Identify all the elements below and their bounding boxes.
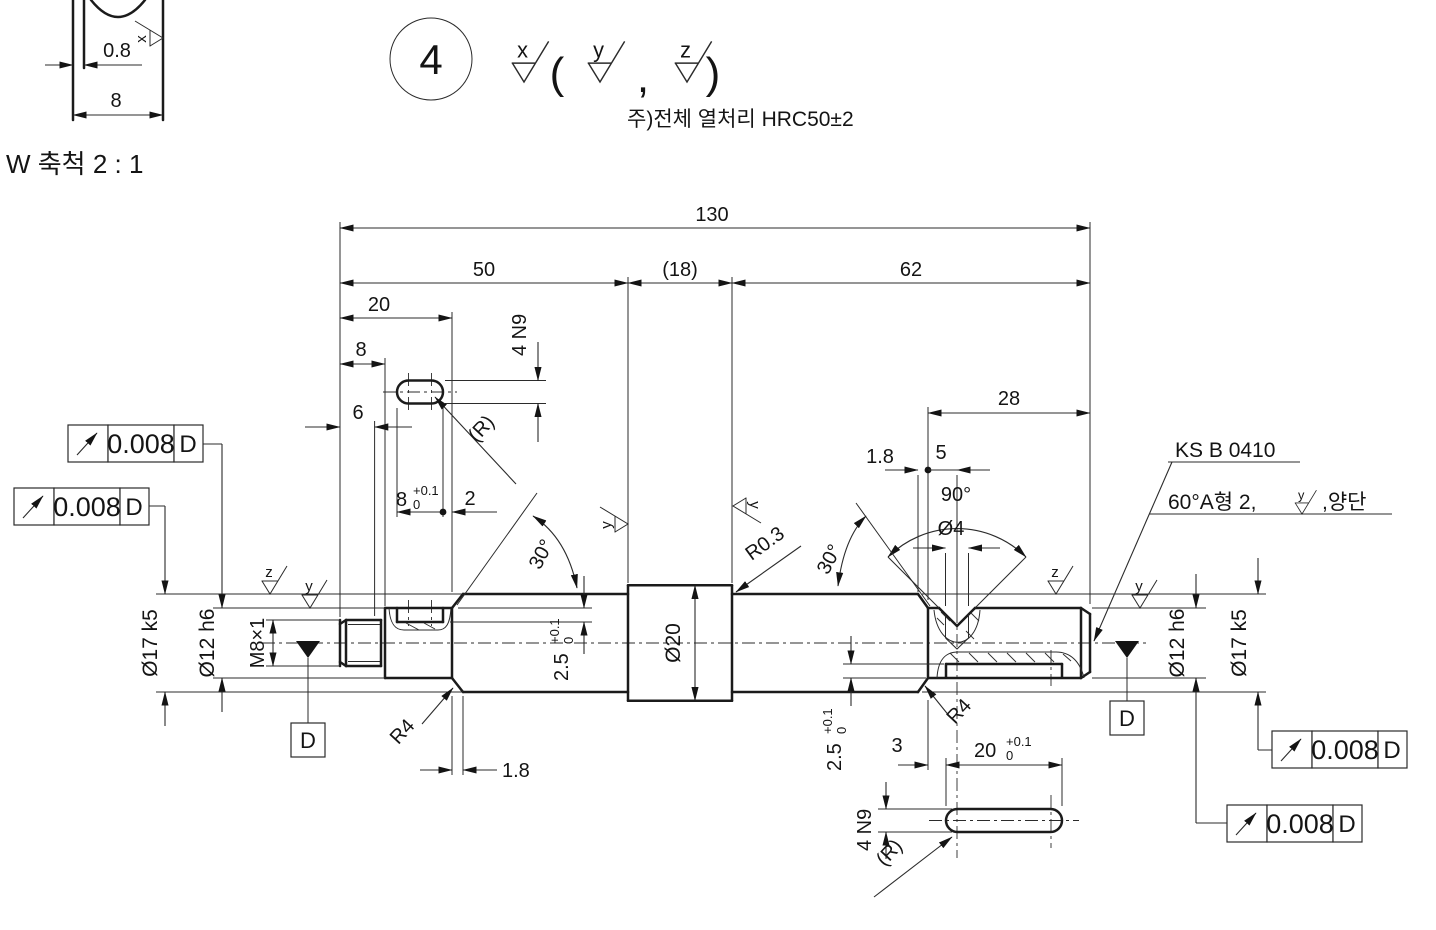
gdt-frame-right-lower: 0.008 D — [1196, 805, 1362, 842]
label-left-keyway-radius: (R) — [464, 411, 499, 446]
dim-collar-fillet: R0.3 — [742, 523, 789, 566]
detail-relief-dim: 0.8 — [103, 40, 131, 62]
detail-length-dim: 8 — [110, 90, 121, 112]
dim-right-keyway-offset: 3 — [891, 735, 902, 757]
dim-left-keyway-gap: 2 — [464, 488, 475, 510]
note-center-spec-prefix: 60°A형 2, — [1168, 491, 1256, 514]
dim-right-keyway-depth: 2.5 — [824, 743, 846, 771]
surface-mark-letter: z — [1051, 564, 1059, 581]
datum-triangle-icon — [1115, 641, 1139, 658]
gdt-frame-left-lower: 0.008 D — [14, 488, 165, 525]
gdt-frame-right-upper: 0.008 D — [1258, 731, 1407, 768]
surface-finish-icon: y — [1132, 578, 1158, 608]
finish-note: 4 x ( y , z ) 주)전체 열처리 HRC50±2 — [390, 18, 854, 131]
surface-finish-icon: x — [133, 21, 163, 47]
gdt-datum: D — [1383, 737, 1400, 764]
dim-right-journal: 28 — [998, 388, 1020, 410]
gdt-datum: D — [125, 494, 142, 521]
tol-plus: +0.1 — [413, 483, 439, 498]
surface-mark-letter: y — [1298, 488, 1305, 503]
surface-finish-icon: y — [588, 37, 625, 82]
gdt-value: 0.008 — [1266, 809, 1334, 839]
dim-left-journal: 20 — [368, 294, 390, 316]
dim-chamfer-angle-right: 30° — [813, 541, 847, 578]
surface-finish-icon: y — [1295, 488, 1317, 514]
left-keyway-breakout — [389, 608, 451, 630]
label-dia17-left: Ø17 k5 — [139, 609, 162, 677]
surface-mark-letter: z — [680, 37, 691, 62]
tol-zero: 0 — [1006, 748, 1013, 763]
surface-finish-icon: y — [302, 578, 328, 608]
surface-mark-letter: y — [1135, 578, 1143, 595]
left-keyway-plan: 4 N9 8 +0.1 0 2 (R) — [396, 314, 546, 517]
dim-right-section: 62 — [900, 259, 922, 281]
note-center-spec-suffix: ,양단 — [1322, 491, 1366, 514]
centerlines — [262, 373, 1150, 858]
surface-finish-icon: x — [512, 37, 549, 82]
tol-plus: +0.1 — [1006, 734, 1032, 749]
surface-mark-letter: y — [305, 578, 313, 595]
right-keyway-dimensions: 2.5 +0.1 0 3 20 +0.1 0 4 N9 (R) — [820, 636, 1062, 897]
datum-triangle-icon — [296, 641, 320, 658]
dim-left-keyway-depth: 2.5 — [551, 653, 573, 681]
surface-mark-letter: x — [517, 37, 528, 62]
surface-mark-letter: y — [598, 521, 615, 529]
gdt-datum: D — [1338, 811, 1355, 838]
surface-finish-icon: y — [733, 498, 763, 524]
surface-marks: z y y y z y — [262, 498, 1158, 609]
label-dia12-right: Ø12 h6 — [1166, 609, 1189, 678]
surface-mark-letter: y — [746, 501, 763, 509]
dim-right-keyway-width: 4 N9 — [854, 809, 876, 851]
paren-open: ( — [550, 49, 565, 98]
datum-label: D — [300, 728, 316, 753]
gdt-frame-left-upper: 0.008 D — [68, 425, 222, 462]
tol-zero: 0 — [834, 727, 849, 734]
dim-thread-length: 8 — [355, 339, 366, 361]
dim-center-hole-angle: 90° — [941, 484, 971, 506]
dim-center-hole-offset: 5 — [935, 442, 946, 464]
comma: , — [637, 53, 649, 102]
note-center-standard: KS B 0410 — [1175, 439, 1275, 462]
dim-left-keyway-width: 4 N9 — [509, 314, 531, 356]
tol-zero: 0 — [413, 497, 420, 512]
surface-finish-icon: z — [1048, 564, 1074, 594]
top-dimensions: 130 50 (18) 62 20 8 6 — [305, 204, 1090, 617]
dim-shoulder-fillet-left: R4 — [386, 715, 420, 749]
drawing-sheet: 0.8 8 x W 축척 2 : 1 4 x ( y , z ) 주)전체 열처… — [0, 0, 1436, 930]
dim-total-length: 130 — [695, 204, 728, 226]
shaft-drawing: 0.8 8 x W 축척 2 : 1 4 x ( y , z ) 주)전체 열처… — [0, 0, 1436, 930]
tol-plus: +0.1 — [547, 618, 562, 644]
surface-mark-letter: y — [593, 37, 604, 62]
surface-finish-icon: y — [598, 507, 628, 533]
surface-finish-icon: z — [262, 564, 288, 594]
label-right-keyway-radius: (R) — [872, 835, 907, 870]
left-dimensions: M8×1 Ø12 h6 Ø17 k5 2.5 +0.1 0 30° R4 — [139, 444, 592, 782]
paren-close: ) — [706, 49, 721, 98]
tol-plus: +0.1 — [820, 708, 835, 734]
dim-chamfer-width-left: 1.8 — [502, 760, 530, 782]
datum-right: D — [1110, 641, 1144, 735]
gdt-datum: D — [179, 431, 196, 458]
dim-left-section: 50 — [473, 259, 495, 281]
detail-boundary-arc — [91, 0, 145, 17]
label-dia17-right: Ø17 k5 — [1228, 609, 1251, 677]
dim-collar-section: (18) — [662, 259, 698, 281]
dim-relief-width-right: 1.8 — [866, 446, 894, 468]
gdt-value: 0.008 — [53, 492, 121, 522]
detail-w-view: 0.8 8 x W 축척 2 : 1 — [6, 0, 163, 179]
dim-collar-dia: Ø20 — [662, 623, 685, 663]
datum-label: D — [1119, 706, 1135, 731]
gdt-value: 0.008 — [1311, 735, 1379, 765]
label-dia12-left: Ø12 h6 — [196, 609, 219, 678]
detail-w-title: W 축척 2 : 1 — [6, 149, 143, 179]
surface-mark-letter: x — [133, 35, 150, 43]
label-thread: M8×1 — [247, 618, 269, 669]
dim-right-keyway-length: 20 — [974, 740, 996, 762]
dim-center-hole-dia: Ø4 — [938, 518, 965, 540]
balloon-number: 4 — [419, 36, 442, 83]
dim-left-keyway-length: 8 — [396, 489, 407, 511]
chain-dim-dot — [440, 509, 447, 516]
heat-treatment-note: 주)전체 열처리 HRC50±2 — [627, 108, 854, 131]
dim-thread-full: 6 — [352, 402, 363, 424]
datum-left: D — [291, 641, 325, 757]
surface-mark-letter: z — [265, 564, 273, 581]
gdt-value: 0.008 — [107, 429, 175, 459]
dim-chamfer-angle-left: 30° — [525, 536, 559, 573]
tol-zero: 0 — [561, 637, 576, 644]
dim-shoulder-fillet-right: R4 — [943, 695, 977, 729]
